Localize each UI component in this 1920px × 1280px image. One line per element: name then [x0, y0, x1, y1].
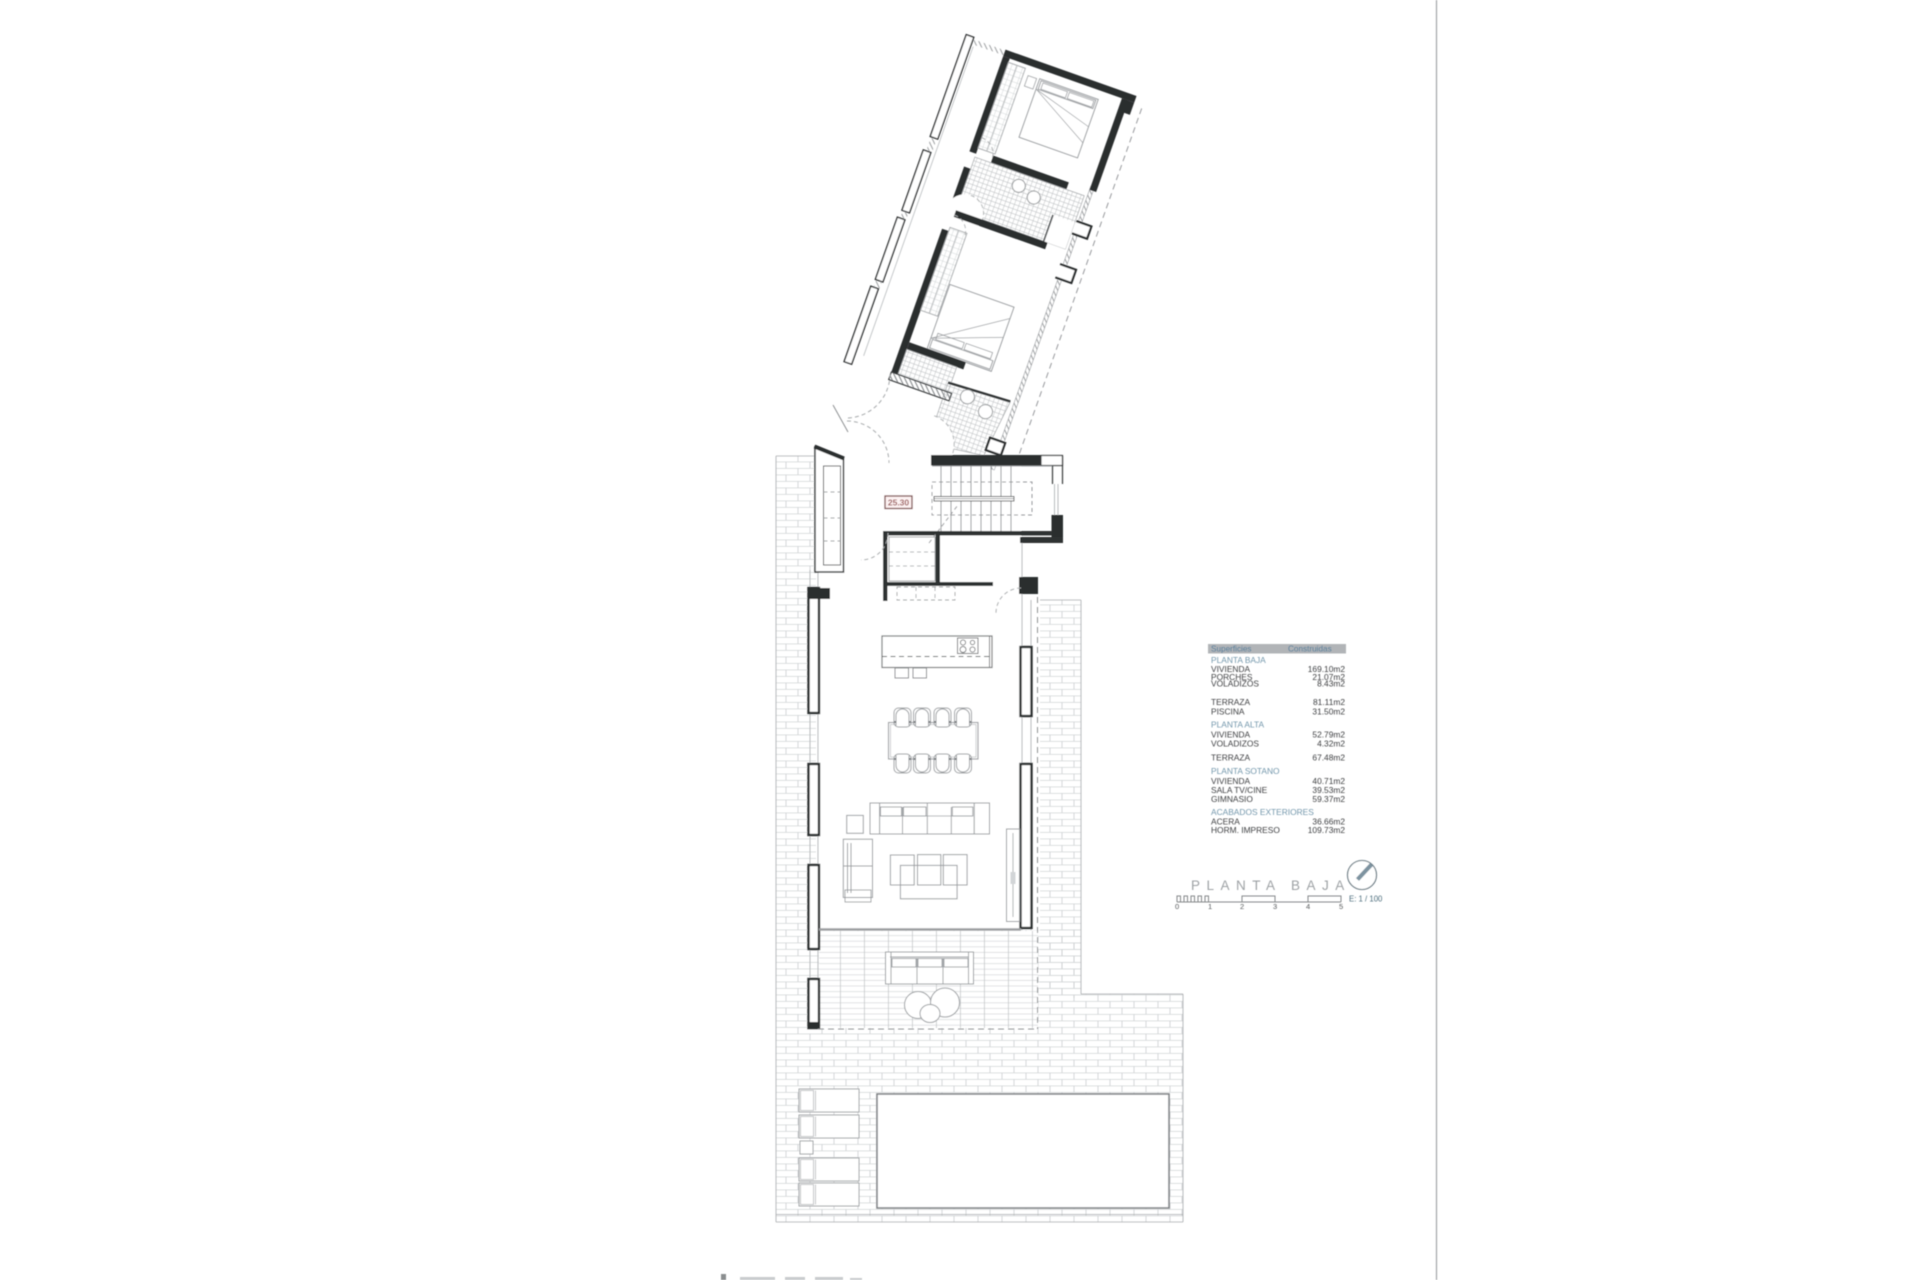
svg-text:TERRAZA: TERRAZA [1211, 753, 1251, 763]
svg-text:HORM. IMPRESO: HORM. IMPRESO [1211, 825, 1280, 835]
svg-text:25.30: 25.30 [888, 498, 910, 508]
svg-text:VOLADIZOS: VOLADIZOS [1211, 679, 1259, 689]
svg-text:PISCINA: PISCINA [1211, 707, 1245, 717]
svg-text:GIMNASIO: GIMNASIO [1211, 794, 1253, 804]
svg-text:4: 4 [1306, 902, 1310, 911]
svg-text:109.73m2: 109.73m2 [1308, 825, 1346, 835]
svg-text:PLANTA BAJA: PLANTA BAJA [1191, 878, 1351, 893]
svg-text:8.43m2: 8.43m2 [1317, 679, 1345, 689]
svg-text:ACABADOS EXTERIORES: ACABADOS EXTERIORES [1211, 807, 1314, 817]
svg-text:4.32m2: 4.32m2 [1317, 739, 1345, 749]
svg-text:TERRAZA: TERRAZA [1211, 697, 1251, 707]
svg-text:1: 1 [1208, 902, 1212, 911]
svg-text:2: 2 [1240, 902, 1244, 911]
svg-text:81.11m2: 81.11m2 [1313, 697, 1345, 707]
svg-text:Superficies: Superficies [1211, 645, 1252, 654]
svg-text:Construidas: Construidas [1288, 645, 1332, 654]
svg-text:E: 1 / 100: E: 1 / 100 [1349, 895, 1383, 904]
svg-text:67.48m2: 67.48m2 [1312, 753, 1345, 763]
svg-text:PLANTA ALTA: PLANTA ALTA [1211, 720, 1264, 730]
svg-text:0: 0 [1175, 902, 1179, 911]
svg-text:5: 5 [1339, 902, 1343, 911]
svg-text:31.50m2: 31.50m2 [1312, 707, 1345, 717]
svg-text:3: 3 [1273, 902, 1277, 911]
svg-text:PLANTA SOTANO: PLANTA SOTANO [1211, 766, 1280, 776]
svg-text:59.37m2: 59.37m2 [1312, 794, 1345, 804]
svg-text:VOLADIZOS: VOLADIZOS [1211, 739, 1259, 749]
